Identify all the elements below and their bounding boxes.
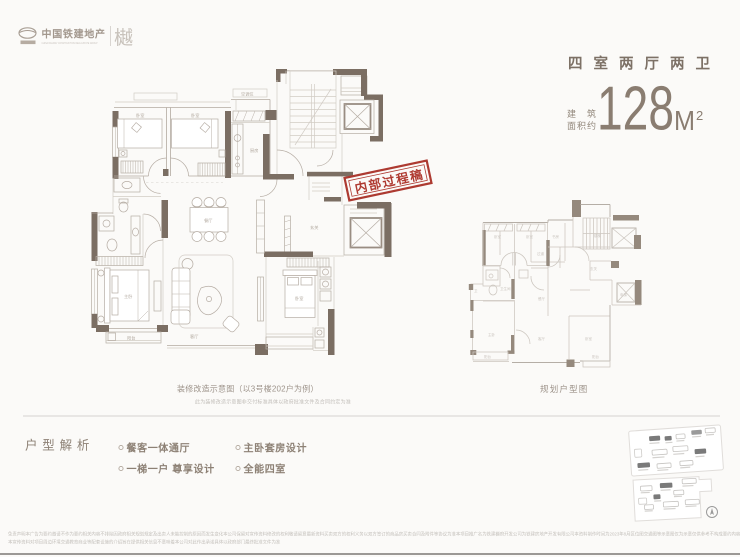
svg-text:书房: 书房 <box>552 234 560 239</box>
svg-text:餐厅: 餐厅 <box>204 217 212 224</box>
svg-text:客厅: 客厅 <box>190 333 198 340</box>
svg-text:全能四室: 全能四室 <box>243 463 286 476</box>
svg-text:面积约: 面积约 <box>567 120 597 131</box>
svg-text:餐客一体通厅: 餐客一体通厅 <box>126 442 191 455</box>
svg-text:装修改造示意图（以3号楼202户为例）: 装修改造示意图（以3号楼202户为例） <box>177 384 319 394</box>
svg-text:户型解析: 户型解析 <box>25 438 94 453</box>
svg-text:卧室: 卧室 <box>136 112 144 119</box>
svg-text:阳台: 阳台 <box>127 335 135 342</box>
svg-text:电梯: 电梯 <box>620 292 628 297</box>
svg-text:规划户型图: 规划户型图 <box>540 384 589 394</box>
svg-text:过道: 过道 <box>537 251 545 256</box>
svg-text:卧室: 卧室 <box>191 112 199 119</box>
svg-text:主卧: 主卧 <box>488 332 496 337</box>
svg-text:卧室: 卧室 <box>494 234 502 239</box>
svg-text:免责声明本广告为要约邀请不作为要约相关内容不排除因政府相关规: 免责声明本广告为要约邀请不作为要约相关内容不排除因政府相关规划规定及出卖人未能控… <box>8 531 740 538</box>
svg-text:阳台: 阳台 <box>484 354 492 359</box>
svg-text:玄关: 玄关 <box>590 266 598 271</box>
svg-text:2: 2 <box>696 108 703 123</box>
svg-text:楼梯: 楼梯 <box>594 233 602 238</box>
svg-text:中国铁建地产: 中国铁建地产 <box>42 28 106 41</box>
svg-text:CHINA RAILWAY CONSTRUCTION REA: CHINA RAILWAY CONSTRUCTION REAL ESTATE G… <box>42 41 98 45</box>
svg-text:卧室: 卧室 <box>295 295 303 302</box>
svg-text:阳台: 阳台 <box>592 354 600 359</box>
svg-text:卫生间: 卫生间 <box>500 286 511 291</box>
svg-text:客厅: 客厅 <box>538 336 546 341</box>
svg-text:餐厅: 餐厅 <box>538 296 546 301</box>
svg-text:一梯一户 尊享设计: 一梯一户 尊享设计 <box>127 463 215 476</box>
svg-text:厨房: 厨房 <box>250 147 258 154</box>
svg-text:本宣传资料对项目周边环境交通教育商业等配套设施的介绍旨在提供: 本宣传资料对项目周边环境交通教育商业等配套设施的介绍旨在提供相关信息不意味着本公… <box>8 539 281 546</box>
svg-text:卧室: 卧室 <box>585 336 593 341</box>
svg-text:空调位: 空调位 <box>241 91 254 98</box>
svg-text:此为装修改造示意图非交付标准具体以政府批准文件及合同约定为准: 此为装修改造示意图非交付标准具体以政府批准文件及合同约定为准 <box>195 399 351 406</box>
svg-text:主卧: 主卧 <box>124 293 132 300</box>
svg-text:128: 128 <box>597 74 674 144</box>
svg-text:卫: 卫 <box>474 289 478 293</box>
svg-text:樾: 樾 <box>114 27 133 49</box>
svg-text:主卧套房设计: 主卧套房设计 <box>244 442 308 455</box>
svg-text:四室两厅两卫: 四室两厅两卫 <box>568 55 721 73</box>
svg-text:卧室: 卧室 <box>526 234 534 239</box>
svg-text:M: M <box>674 105 695 136</box>
svg-text:玄关: 玄关 <box>310 224 318 231</box>
